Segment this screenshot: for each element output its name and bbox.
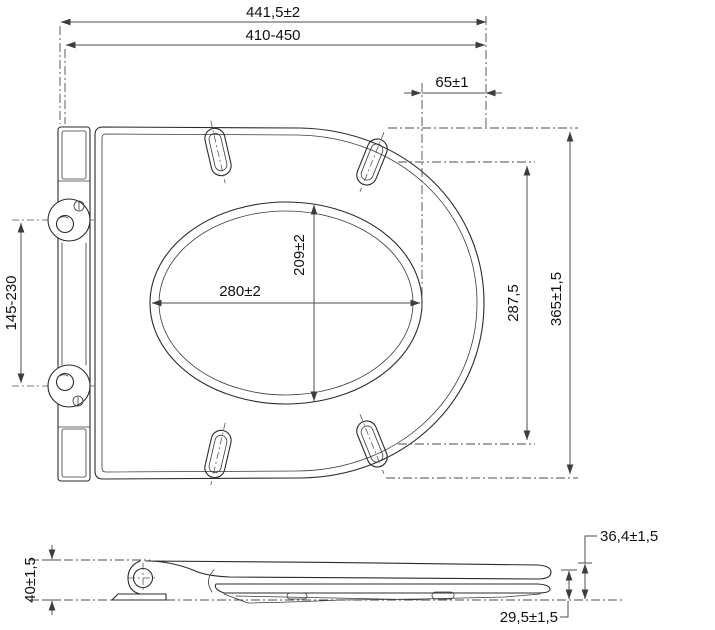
dim-back-height-label: 40±1,5 <box>22 557 39 603</box>
lid-profile <box>146 561 551 579</box>
technical-drawing-page: 441,5±2 410-450 65±1 145-230 280±2 209±2… <box>0 0 715 630</box>
hinge-mount-plate <box>112 594 166 600</box>
bumper-slot-bottom-left <box>201 421 235 488</box>
side-bumper-left <box>287 593 307 599</box>
side-view <box>30 560 622 603</box>
toilet-seat-dimension-drawing: 441,5±2 410-450 65±1 145-230 280±2 209±2… <box>0 0 715 630</box>
bumper-slot-top-left <box>201 119 235 186</box>
dim-bumper-span-label: 287,5 <box>505 284 522 322</box>
side-dimensions: 40±1,5 29,5±1,5 36,4±1,5 <box>22 528 658 626</box>
seat-ring-profile <box>215 584 550 593</box>
dim-adjustable-length-label: 410-450 <box>245 27 300 44</box>
bumper-slot-top-right <box>351 129 394 196</box>
dim-hinge-centers-label: 145-230 <box>3 275 20 330</box>
dim-opening-depth-label: 209±2 <box>291 234 308 276</box>
plan-dimensions: 441,5±2 410-450 65±1 145-230 280±2 209±2… <box>3 4 578 478</box>
hinge-bar <box>58 127 90 481</box>
hinge-cap-top <box>12 199 96 241</box>
hinge-cap-bottom <box>12 365 96 407</box>
dim-opening-width-label: 280±2 <box>219 283 261 300</box>
dim-overall-length-label: 441,5±2 <box>246 4 300 21</box>
side-hinge <box>112 561 166 600</box>
underside-edge <box>236 596 430 600</box>
dim-total-height-label: 36,4±1,5 <box>600 528 658 545</box>
dim-front-rim-label: 65±1 <box>435 74 468 91</box>
bumper-slot-bottom-right <box>351 411 394 478</box>
underside-rim <box>224 594 540 603</box>
dim-overall-width-label: 365±1,5 <box>548 272 565 326</box>
seat-back-lip <box>208 570 214 592</box>
dim-seat-height-label: 29,5±1,5 <box>500 609 558 626</box>
